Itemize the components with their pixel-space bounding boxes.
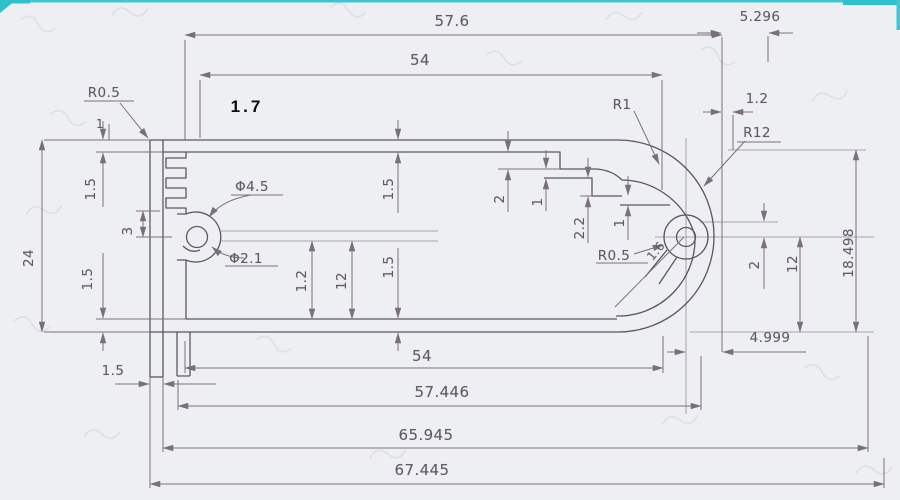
dim-label-1-5-mid-top: 1.5 <box>381 178 397 201</box>
dim-label-2-2: 2.2 <box>572 217 588 240</box>
drawing-sheet: 57.6 5.296 54 R0.5 1.7 1 R1 1.2 R12 24 1… <box>0 0 900 500</box>
diameter-label-2-1: Φ2.1 <box>229 251 263 267</box>
dim-label-1-mid: 1 <box>530 198 546 207</box>
dim-label-4-999: 4.999 <box>750 330 791 346</box>
radius-label-r0-5-right: R0.5 <box>598 248 630 264</box>
dim-label-5-296: 5.296 <box>740 9 781 25</box>
dim-label-24: 24 <box>21 249 37 267</box>
annotation-note-1-7: 1.7 <box>231 97 264 117</box>
radius-label-r0-5-left: R0.5 <box>88 85 120 101</box>
radius-label-r12: R12 <box>743 125 771 141</box>
dim-label-1-5-left-bottom: 1.5 <box>80 268 96 291</box>
dim-label-1-2-mid: 1.2 <box>294 270 310 293</box>
dim-label-1-top-left: 1 <box>96 117 104 131</box>
center-lines <box>221 138 874 414</box>
dim-label-2-right: 2 <box>747 261 763 270</box>
dim-label-1-5-bottom-left: 1.5 <box>102 363 125 379</box>
diameter-label-4-5: Φ4.5 <box>235 179 269 195</box>
dim-label-54-bottom: 54 <box>412 347 432 365</box>
dim-label-3: 3 <box>120 227 136 236</box>
watermark-pattern <box>13 2 892 478</box>
dim-label-1-2-top-right: 1.2 <box>746 91 769 107</box>
dim-label-12-right: 12 <box>785 255 801 273</box>
dim-label-67-445: 67.445 <box>395 461 450 479</box>
dim-label-54-top: 54 <box>410 51 430 69</box>
dim-label-57-6: 57.6 <box>435 12 470 30</box>
radius-label-r1: R1 <box>613 97 632 113</box>
dim-label-1-5-mid-bottom: 1.5 <box>381 256 397 279</box>
dim-label-18-498: 18.498 <box>841 228 857 278</box>
dim-label-57-446: 57.446 <box>415 383 470 401</box>
drawing-linework <box>0 0 900 500</box>
dim-label-1-5-left-top: 1.5 <box>83 178 99 201</box>
dim-label-1-right-step: 1 <box>612 219 628 228</box>
dim-label-12-mid: 12 <box>334 272 350 290</box>
dim-label-65-945: 65.945 <box>399 426 454 444</box>
dim-label-2-mid: 2 <box>492 195 508 204</box>
